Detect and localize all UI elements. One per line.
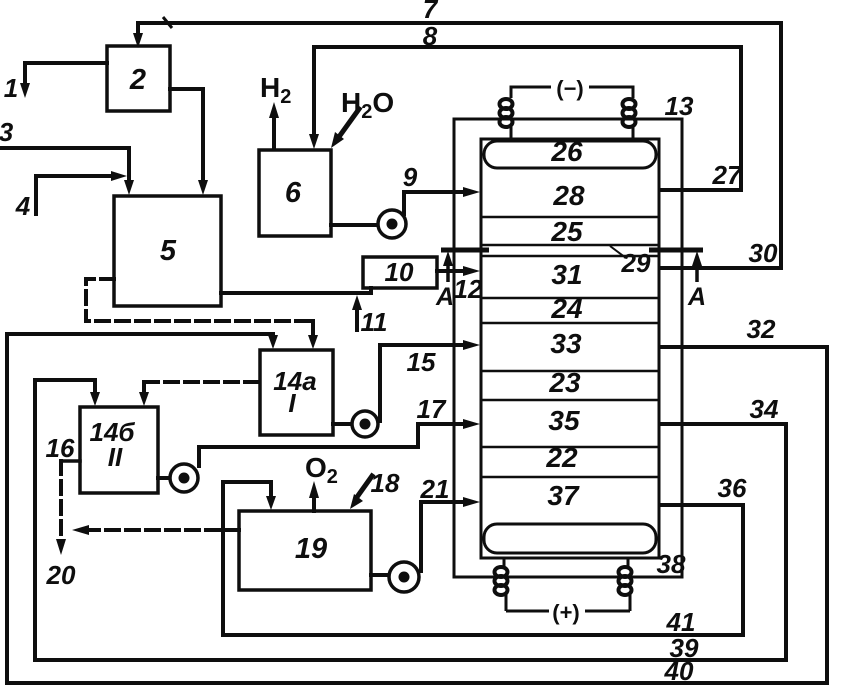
svg-text:I: I <box>288 388 296 418</box>
svg-text:13: 13 <box>665 91 694 121</box>
svg-text:30: 30 <box>749 238 778 268</box>
svg-text:25: 25 <box>550 216 583 247</box>
svg-text:40: 40 <box>664 656 694 686</box>
svg-text:34: 34 <box>750 394 779 424</box>
svg-text:3: 3 <box>0 117 14 147</box>
svg-text:19: 19 <box>295 533 327 565</box>
svg-text:12: 12 <box>454 274 483 304</box>
svg-text:29: 29 <box>621 248 651 278</box>
svg-text:10: 10 <box>385 257 414 287</box>
svg-text:26: 26 <box>550 136 583 167</box>
svg-text:4: 4 <box>15 191 31 221</box>
svg-text:5: 5 <box>160 235 177 267</box>
svg-text:31: 31 <box>551 259 582 290</box>
svg-text:24: 24 <box>550 293 583 324</box>
svg-text:II: II <box>108 442 123 472</box>
svg-text:36: 36 <box>718 473 747 503</box>
svg-text:A: A <box>687 283 706 311</box>
svg-text:6: 6 <box>285 177 302 209</box>
svg-text:8: 8 <box>423 21 438 51</box>
svg-text:35: 35 <box>548 405 580 436</box>
svg-text:2: 2 <box>129 64 146 96</box>
svg-text:28: 28 <box>552 180 585 211</box>
svg-text:32: 32 <box>747 314 776 344</box>
svg-text:A: A <box>435 283 454 311</box>
svg-text:37: 37 <box>547 480 580 511</box>
svg-text:22: 22 <box>545 442 578 473</box>
svg-text:20: 20 <box>46 560 76 590</box>
svg-text:11: 11 <box>361 307 388 337</box>
svg-text:18: 18 <box>371 468 400 498</box>
svg-text:33: 33 <box>550 328 582 359</box>
svg-text:9: 9 <box>403 162 418 192</box>
svg-text:21: 21 <box>420 474 450 504</box>
svg-text:17: 17 <box>417 394 447 424</box>
svg-text:38: 38 <box>657 549 686 579</box>
svg-text:1: 1 <box>4 73 18 103</box>
svg-text:27: 27 <box>712 160 743 190</box>
svg-text:(−): (−) <box>556 76 584 101</box>
svg-text:(+): (+) <box>552 600 580 625</box>
svg-text:23: 23 <box>548 367 581 398</box>
svg-text:16: 16 <box>46 433 75 463</box>
svg-text:15: 15 <box>407 347 436 377</box>
